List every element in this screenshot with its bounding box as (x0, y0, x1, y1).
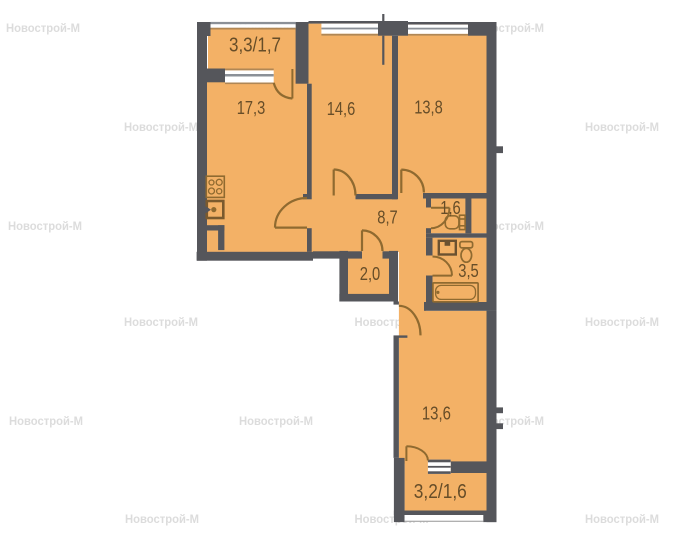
svg-text:8,7: 8,7 (377, 207, 398, 227)
svg-text:17,3: 17,3 (237, 98, 266, 118)
svg-text:2,0: 2,0 (360, 264, 381, 284)
svg-text:13,8: 13,8 (414, 98, 443, 118)
svg-text:14,6: 14,6 (327, 99, 356, 119)
svg-text:13,6: 13,6 (422, 404, 451, 424)
svg-text:3,5: 3,5 (458, 261, 479, 281)
svg-text:3,3/1,7: 3,3/1,7 (229, 35, 281, 57)
svg-text:1,6: 1,6 (440, 198, 461, 218)
svg-text:3,2/1,6: 3,2/1,6 (414, 481, 467, 503)
